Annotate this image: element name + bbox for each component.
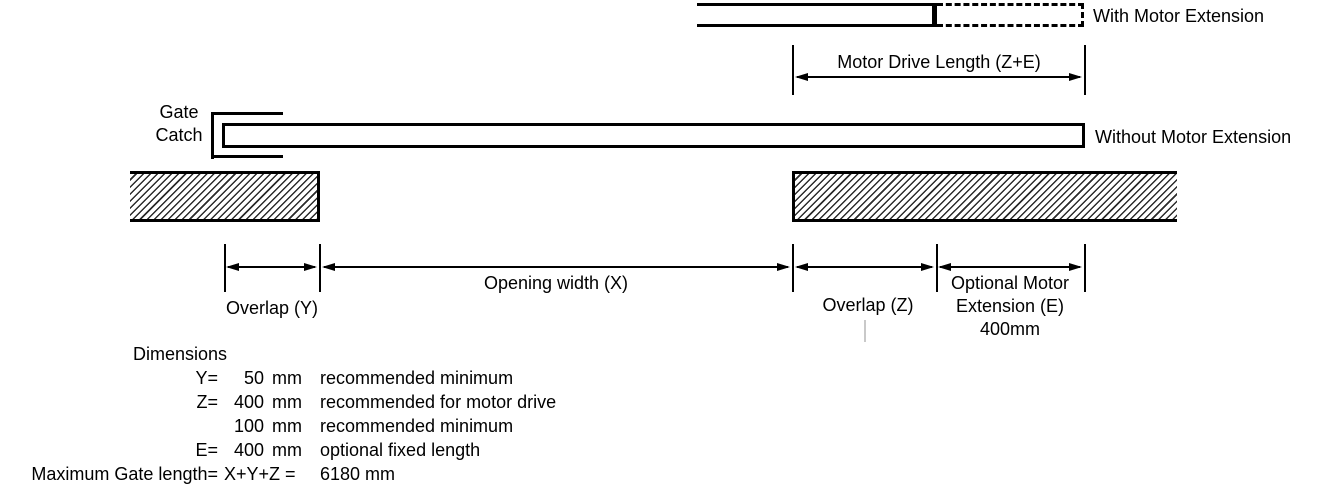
dim-line xyxy=(797,266,932,268)
dim-line xyxy=(324,266,788,268)
arrowhead-right-icon xyxy=(921,263,934,271)
dim-unit: mm xyxy=(272,414,306,438)
arrowhead-right-icon xyxy=(304,263,317,271)
gate-dimension-diagram: With Motor Extension Motor Drive Length … xyxy=(0,0,1326,485)
dim-tick xyxy=(319,244,321,292)
arrowhead-right-icon xyxy=(777,263,790,271)
dim-label: Maximum Gate length= xyxy=(0,462,218,485)
without-motor-extension-label: Without Motor Extension xyxy=(1095,126,1291,149)
gate-bar-without-motor xyxy=(222,123,1085,148)
stray-gray-line xyxy=(864,320,866,342)
dim-label: Z= xyxy=(0,390,218,414)
dim-result: 6180 mm xyxy=(320,462,395,485)
dim-value: 100 xyxy=(218,414,264,438)
dim-formula: X+Y+Z = xyxy=(224,462,312,485)
dim-line xyxy=(940,266,1080,268)
gate-bar-with-motor-solid-segment xyxy=(697,3,937,27)
arrowhead-right-icon xyxy=(1069,73,1082,81)
dimension-row-y: Y= 50 mm recommended minimum xyxy=(0,366,760,390)
dimension-row-z: Z= 400 mm recommended for motor drive xyxy=(0,390,760,414)
dim-unit: mm xyxy=(272,438,306,462)
optional-motor-extension-label: Optional Motor Extension (E) 400mm xyxy=(930,272,1090,341)
dim-value: 50 xyxy=(218,366,264,390)
gate-catch-label: Gate Catch xyxy=(129,101,229,147)
opening-width-label: Opening width (X) xyxy=(456,272,656,295)
dimensions-notes: Dimensions Y= 50 mm recommended minimum … xyxy=(0,342,760,485)
overlap-y-label: Overlap (Y) xyxy=(197,297,347,320)
dim-value: 400 xyxy=(218,438,264,462)
wall-left-hatched xyxy=(130,171,320,222)
dimension-row-z-min: 100 mm recommended minimum xyxy=(0,414,760,438)
arrowhead-right-icon xyxy=(1069,263,1082,271)
motor-drive-length-label: Motor Drive Length (Z+E) xyxy=(814,51,1064,74)
extension-label-line1: Optional Motor xyxy=(930,272,1090,295)
dimension-row-max-gate-length: Maximum Gate length= X+Y+Z = 6180 mm xyxy=(0,462,760,485)
dim-value: 400 xyxy=(218,390,264,414)
dim-description: recommended minimum xyxy=(320,414,513,438)
dim-description: recommended minimum xyxy=(320,366,513,390)
gate-catch-label-line2: Catch xyxy=(129,124,229,147)
with-motor-extension-label: With Motor Extension xyxy=(1093,5,1264,28)
dim-tick xyxy=(792,244,794,292)
gate-catch-bracket-bottom xyxy=(211,155,283,158)
dim-tick xyxy=(1084,45,1086,95)
dim-description: optional fixed length xyxy=(320,438,480,462)
gate-catch-bracket-top xyxy=(211,112,283,115)
dimensions-title: Dimensions xyxy=(133,342,760,366)
overlap-z-label: Overlap (Z) xyxy=(793,294,943,317)
dimension-row-e: E= 400 mm optional fixed length xyxy=(0,438,760,462)
dim-line xyxy=(797,76,1080,78)
extension-label-line3: 400mm xyxy=(930,318,1090,341)
dim-label: Y= xyxy=(0,366,218,390)
wall-right-hatched xyxy=(792,171,1177,222)
dim-line xyxy=(228,266,315,268)
dim-unit: mm xyxy=(272,366,306,390)
dim-label: E= xyxy=(0,438,218,462)
dim-unit: mm xyxy=(272,390,306,414)
motor-extension-dashed-segment xyxy=(937,3,1084,27)
gate-catch-bracket-vertical xyxy=(211,112,214,159)
extension-label-line2: Extension (E) xyxy=(930,295,1090,318)
dim-description: recommended for motor drive xyxy=(320,390,556,414)
dim-tick xyxy=(792,45,794,95)
dim-label xyxy=(0,414,218,438)
